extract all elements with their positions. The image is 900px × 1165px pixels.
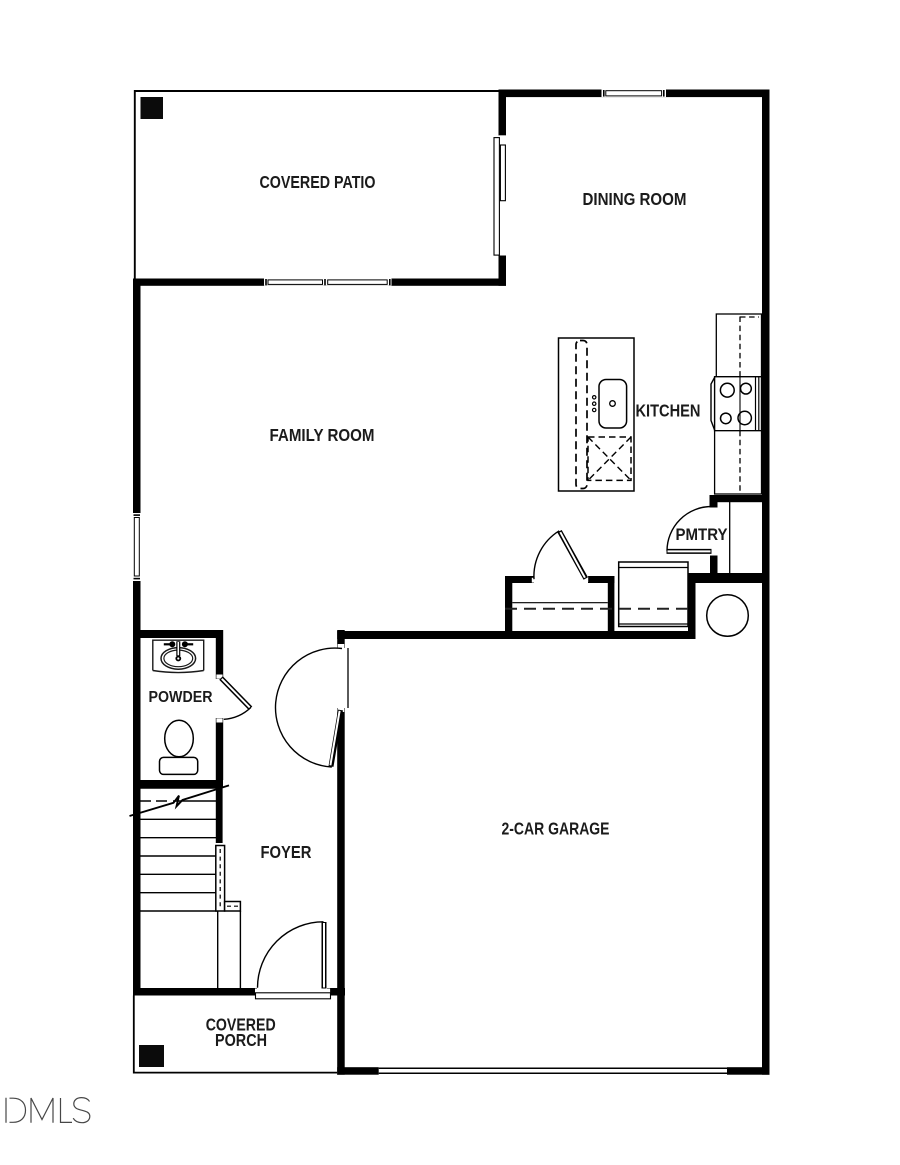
svg-text:FOYER: FOYER bbox=[261, 842, 312, 862]
svg-text:KITCHEN: KITCHEN bbox=[636, 401, 701, 421]
svg-text:COVERED PATIO: COVERED PATIO bbox=[260, 172, 376, 192]
svg-text:POWDER: POWDER bbox=[149, 689, 213, 706]
svg-text:PMTRY: PMTRY bbox=[676, 526, 728, 544]
svg-text:2-CAR GARAGE: 2-CAR GARAGE bbox=[502, 819, 610, 839]
svg-text:FAMILY ROOM: FAMILY ROOM bbox=[270, 425, 375, 445]
svg-text:DINING ROOM: DINING ROOM bbox=[583, 189, 687, 209]
svg-text:PORCH: PORCH bbox=[215, 1030, 267, 1050]
